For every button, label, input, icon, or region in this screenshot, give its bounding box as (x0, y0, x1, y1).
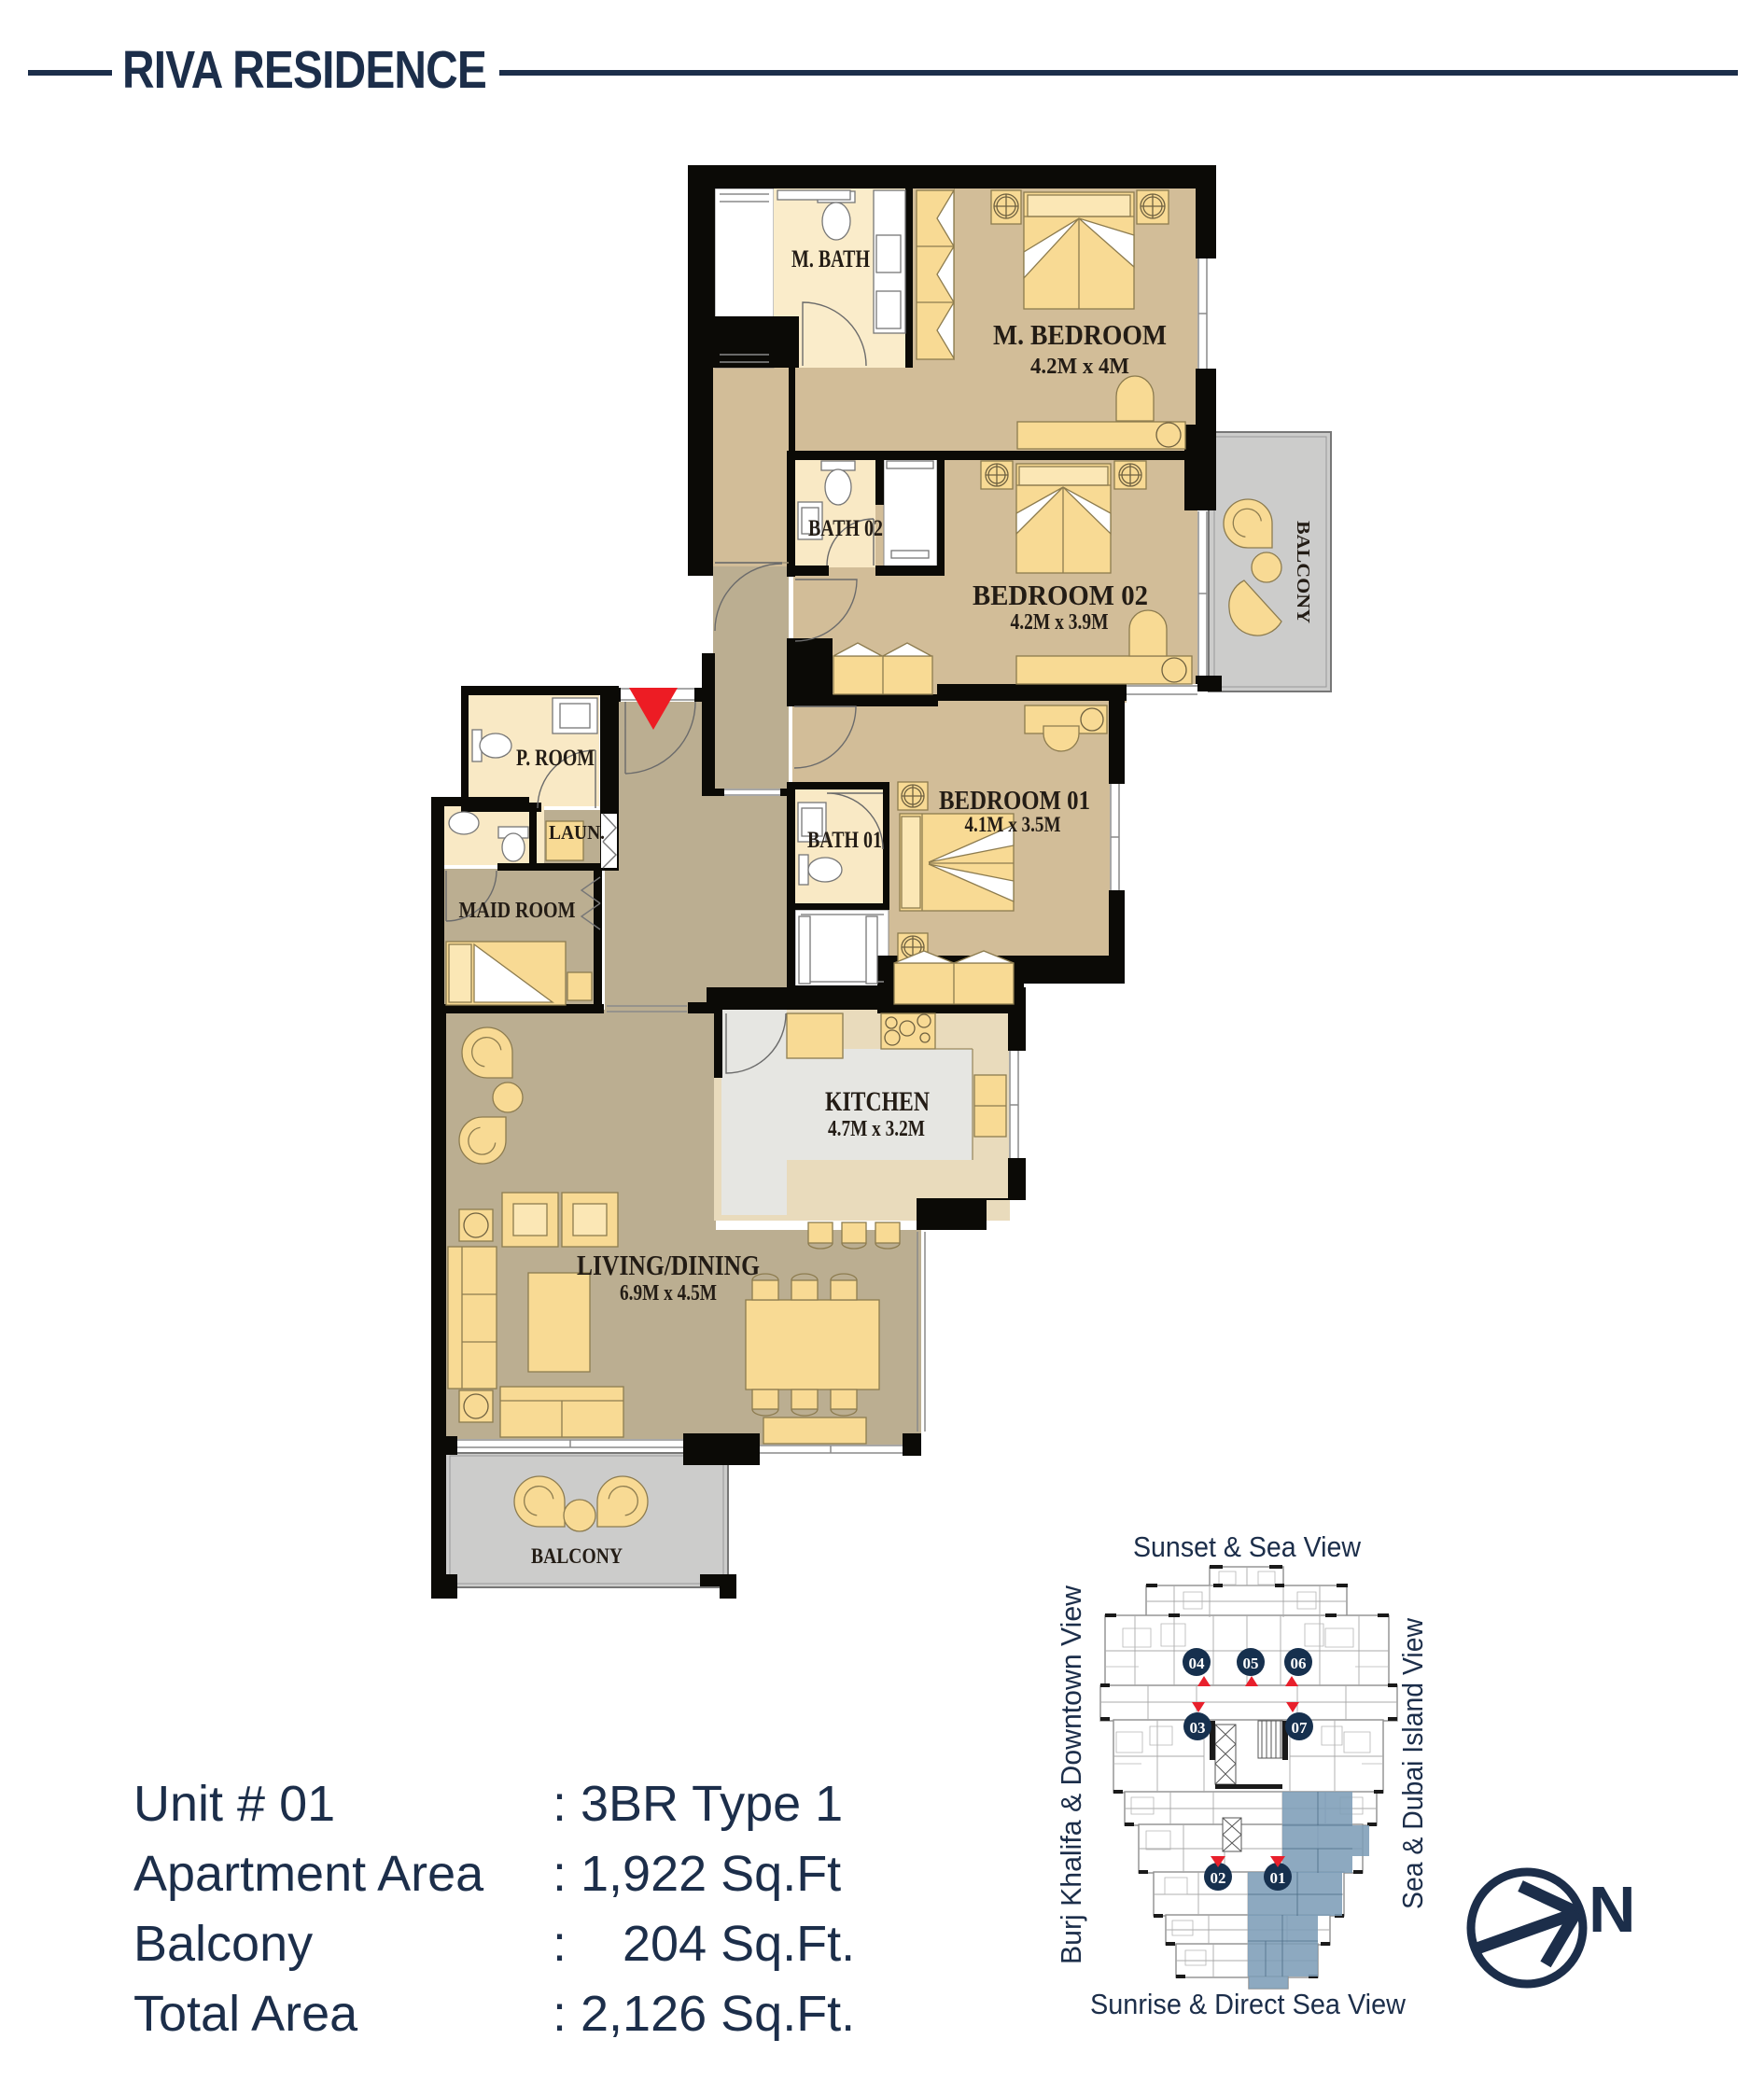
svg-text:Apartment Area: Apartment Area (133, 1846, 484, 1902)
svg-text:: 1,922 Sq.Ft: : 1,922 Sq.Ft (553, 1846, 841, 1902)
svg-text:KITCHEN: KITCHEN (825, 1086, 930, 1117)
svg-text:Sea & Dubai Island View: Sea & Dubai Island View (1396, 1617, 1429, 1909)
svg-text:: 204 Sq.Ft.: : 204 Sq.Ft. (553, 1916, 855, 1972)
svg-text:03: 03 (1190, 1719, 1206, 1737)
svg-text:4.7M x 3.2M: 4.7M x 3.2M (828, 1117, 925, 1141)
svg-text:BATH 02: BATH 02 (808, 516, 883, 541)
svg-text:4.1M x 3.5M: 4.1M x 3.5M (965, 813, 1061, 836)
svg-text:04: 04 (1189, 1655, 1206, 1672)
svg-text:4.2M x 3.9M: 4.2M x 3.9M (1011, 610, 1109, 635)
svg-text:M. BATH: M. BATH (791, 245, 870, 272)
svg-text:Sunset & Sea View: Sunset & Sea View (1133, 1530, 1362, 1563)
svg-text:6.9M x 4.5M: 6.9M x 4.5M (620, 1281, 717, 1306)
svg-text:BEDROOM 02: BEDROOM 02 (973, 579, 1148, 611)
svg-text:M. BEDROOM: M. BEDROOM (993, 318, 1167, 351)
svg-text:Balcony: Balcony (133, 1916, 313, 1972)
svg-text:: 2,126 Sq.Ft.: : 2,126 Sq.Ft. (553, 1986, 855, 2042)
svg-text:Sunrise & Direct Sea View: Sunrise & Direct Sea View (1090, 1988, 1407, 2020)
svg-text:BEDROOM 01: BEDROOM 01 (939, 786, 1090, 816)
svg-text:P. ROOM: P. ROOM (516, 746, 595, 771)
svg-text:BATH 01: BATH 01 (807, 828, 882, 853)
svg-text:LAUN.: LAUN. (549, 821, 605, 844)
svg-text:N: N (1589, 1873, 1636, 1946)
svg-text:4.2M x 4M: 4.2M x 4M (1030, 355, 1129, 379)
svg-text:01: 01 (1270, 1869, 1286, 1887)
svg-text:02: 02 (1211, 1869, 1226, 1887)
svg-text:Total Area: Total Area (133, 1986, 358, 2042)
svg-text:BALCONY: BALCONY (1293, 521, 1313, 624)
svg-text:MAID ROOM: MAID ROOM (459, 899, 576, 923)
svg-text:BALCONY: BALCONY (531, 1544, 623, 1568)
svg-text:06: 06 (1291, 1655, 1307, 1672)
svg-text:RIVA RESIDENCE: RIVA RESIDENCE (122, 40, 486, 100)
svg-text:: 3BR Type 1: : 3BR Type 1 (553, 1776, 843, 1832)
svg-text:LIVING/DINING: LIVING/DINING (577, 1249, 760, 1281)
svg-text:05: 05 (1243, 1655, 1259, 1672)
svg-text:Burj Khalifa & Downtown View: Burj Khalifa & Downtown View (1055, 1585, 1087, 1964)
svg-text:07: 07 (1292, 1719, 1309, 1737)
svg-text:Unit # 01: Unit # 01 (133, 1776, 335, 1832)
